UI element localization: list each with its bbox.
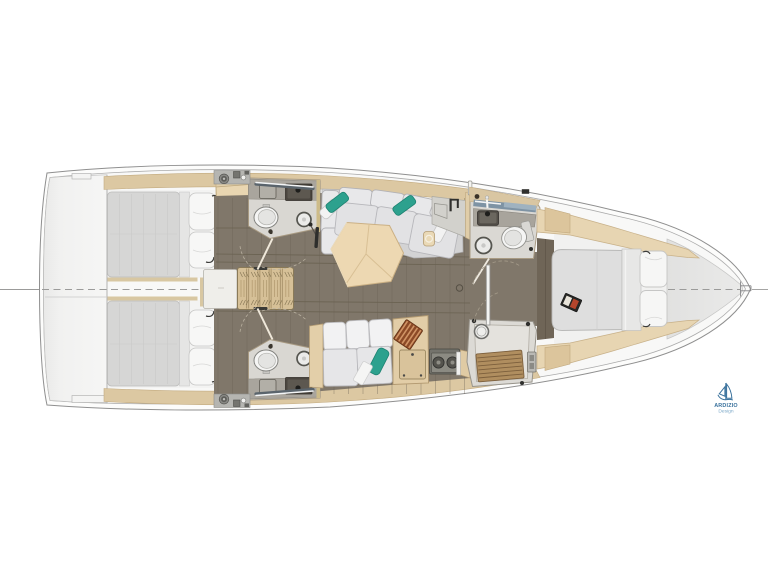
svg-text:Design: Design — [718, 408, 734, 414]
svg-text:ARDIZIO: ARDIZIO — [714, 403, 738, 409]
